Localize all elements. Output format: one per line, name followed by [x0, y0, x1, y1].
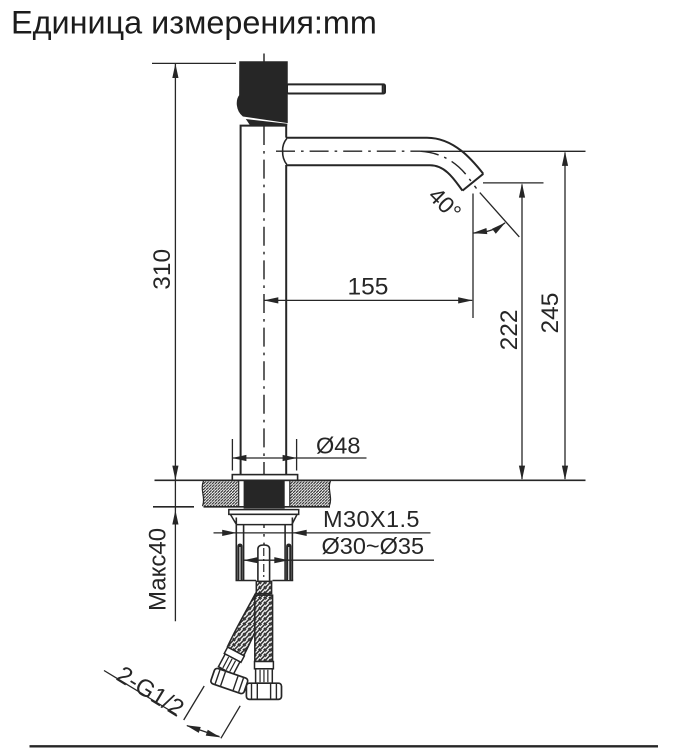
svg-text:222: 222: [496, 309, 523, 350]
svg-text:155: 155: [348, 274, 389, 301]
svg-text:2-G1/2: 2-G1/2: [112, 661, 189, 722]
svg-text:Ø30~Ø35: Ø30~Ø35: [322, 533, 425, 559]
svg-text:Ø48: Ø48: [316, 433, 360, 459]
svg-text:M30X1.5: M30X1.5: [323, 506, 420, 532]
svg-text:245: 245: [537, 293, 564, 334]
svg-text:310: 310: [149, 249, 176, 290]
svg-text:Единица измерения:mm: Единица измерения:mm: [11, 5, 377, 41]
svg-text:Макс40: Макс40: [145, 528, 172, 611]
